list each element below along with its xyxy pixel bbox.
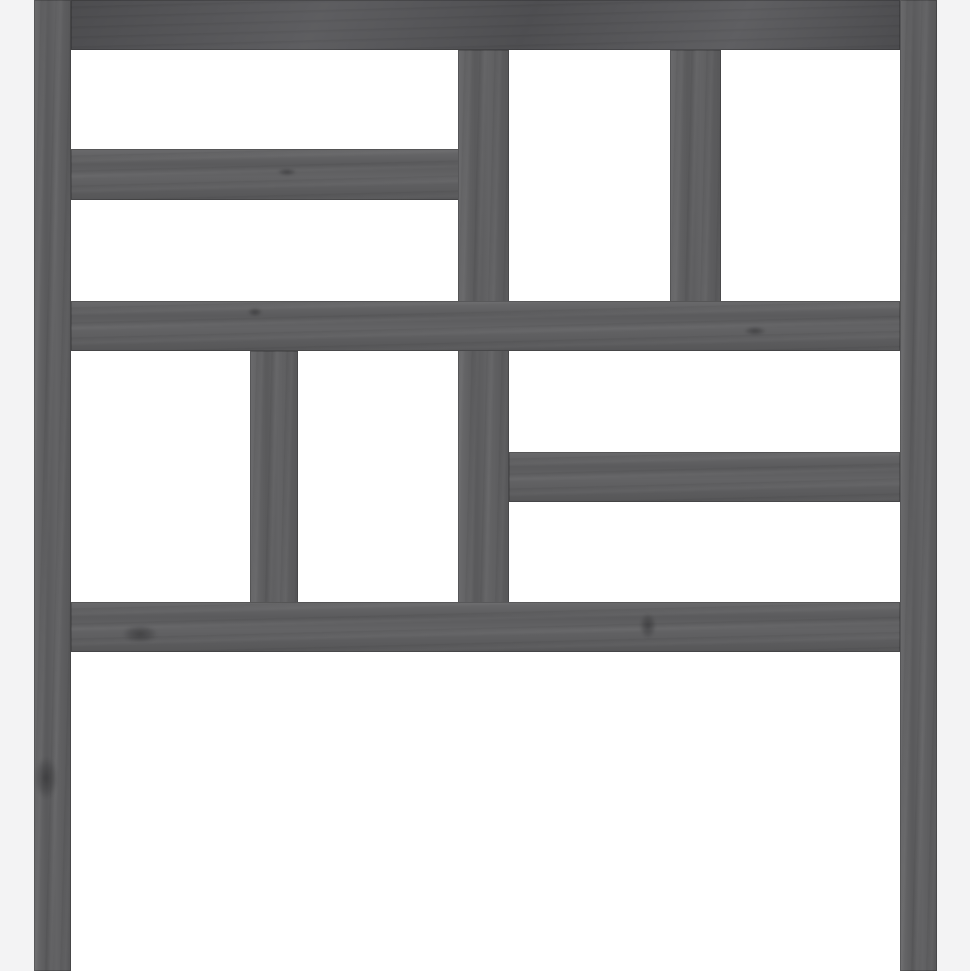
top-beam-board bbox=[71, 0, 900, 50]
slat-right-board bbox=[509, 452, 900, 502]
bottom-beam-board bbox=[71, 602, 900, 652]
right-post-board bbox=[900, 0, 937, 971]
left-post-board bbox=[34, 0, 71, 971]
product-photo bbox=[0, 0, 970, 971]
divider-top-right-board bbox=[670, 50, 721, 303]
middle-beam-board bbox=[71, 301, 900, 351]
divider-bottom-left-board bbox=[250, 351, 298, 604]
headboard bbox=[0, 0, 970, 971]
slat-top-left-board bbox=[71, 149, 460, 200]
